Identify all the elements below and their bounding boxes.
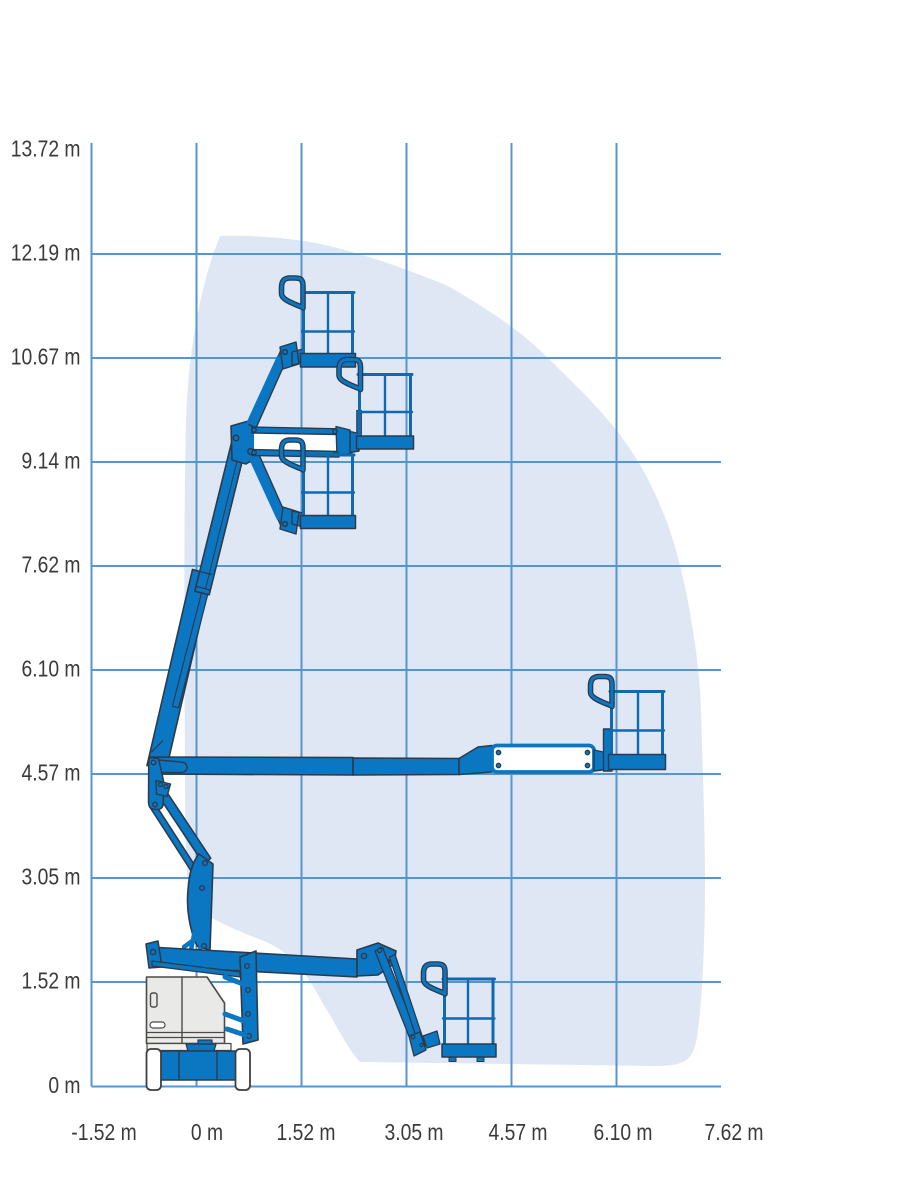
svg-text:7.62 m: 7.62 m [21, 553, 80, 578]
svg-text:13.72 m: 13.72 m [11, 137, 81, 162]
svg-text:3.05 m: 3.05 m [21, 865, 80, 890]
svg-text:7.62 m: 7.62 m [704, 1121, 763, 1146]
svg-text:6.10 m: 6.10 m [593, 1121, 652, 1146]
svg-text:9.14 m: 9.14 m [21, 449, 80, 474]
svg-text:-1.52 m: -1.52 m [71, 1121, 136, 1146]
svg-text:1.52 m: 1.52 m [276, 1121, 335, 1146]
svg-text:0 m: 0 m [191, 1121, 223, 1146]
svg-text:4.57 m: 4.57 m [488, 1121, 547, 1146]
svg-text:1.52 m: 1.52 m [21, 969, 80, 994]
svg-text:4.57 m: 4.57 m [21, 761, 80, 786]
svg-text:10.67 m: 10.67 m [11, 345, 81, 370]
svg-text:12.19 m: 12.19 m [11, 241, 81, 266]
svg-text:3.05 m: 3.05 m [384, 1121, 443, 1146]
svg-text:0 m: 0 m [48, 1074, 80, 1099]
svg-text:6.10 m: 6.10 m [21, 657, 80, 682]
